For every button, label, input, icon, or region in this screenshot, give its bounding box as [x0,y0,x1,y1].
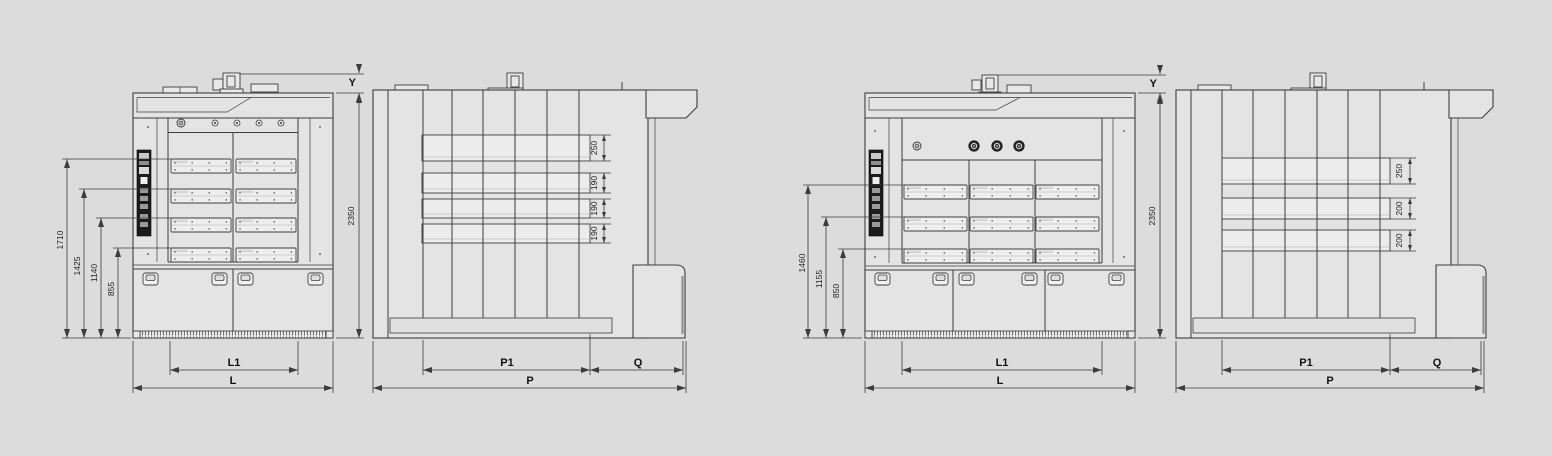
oven1-chimney-vent [163,73,278,93]
inner-depth-label: P1 [1299,357,1312,369]
overall-width-label: L [230,375,237,387]
oven2-side-base-box [1436,265,1486,338]
deck-height-label-2: 1155 [814,270,824,289]
oven2-depth-dimensions: P1 Q P [1176,334,1484,393]
oven2-width-dimensions: L1 L [865,341,1135,393]
oven1-width-dimensions: L1 L [133,341,333,393]
oven1-side-base-box [633,265,685,338]
deck-opening-label-2: 200 [1394,201,1404,215]
oven1-front-view: 1710 1425 1140 855 Y 2350 L1 L [55,64,364,393]
deck-opening-label-3: 200 [1394,233,1404,247]
oven1-side-canopy [646,90,697,118]
deck-opening-label-1: 250 [589,141,599,155]
deck-height-label-4: 855 [106,282,116,296]
oven1-depth-dimensions: P1 Q P [373,334,686,393]
oven2-side-view: 250 200 200 P1 Q P [1176,73,1493,393]
deck-opening-label-2: 190 [589,176,599,190]
deck-height-label-3: 850 [831,284,841,298]
top-clearance-label: Y [1150,78,1158,90]
oven2-side-canopy [1449,90,1493,118]
oven1-side-view: 250 190 190 190 P1 Q P [373,73,697,393]
overall-height-label: 2350 [346,206,356,225]
oven2-vent-grille [872,331,1128,338]
oven2-front-view: 1460 1155 850 Y 2350 L1 L [797,65,1166,393]
inner-width-label: L1 [996,357,1009,369]
overall-depth-label: P [1326,375,1333,387]
overall-height-label: 2350 [1147,206,1157,225]
overall-width-label: L [997,375,1004,387]
deck-opening-label-1: 250 [1394,164,1404,178]
deck-height-label-1: 1710 [55,230,65,249]
overall-depth-label: P [526,375,533,387]
oven-dimension-diagram: 1710 1425 1140 855 Y 2350 L1 L [0,0,1552,456]
deck-opening-label-4: 190 [589,226,599,240]
technical-drawing-canvas: 1710 1425 1140 855 Y 2350 L1 L [0,0,1552,456]
deck-height-label-3: 1140 [89,264,99,283]
oven2-side-deck-bands [1222,158,1390,251]
oven1-vent-grille [140,331,326,338]
deck-height-label-2: 1425 [72,256,82,275]
deck-height-label-1: 1460 [797,253,807,272]
top-clearance-label: Y [349,77,357,89]
inner-width-label: L1 [228,357,241,369]
inner-depth-label: P1 [500,357,513,369]
oven2-front-body [865,93,1135,338]
front-depth-label: Q [1433,357,1442,369]
deck-opening-label-3: 190 [589,201,599,215]
oven1-side-deck-bands [422,135,590,243]
oven2-control-panel [869,150,883,236]
front-depth-label: Q [634,357,643,369]
oven1-control-panel [137,150,151,236]
